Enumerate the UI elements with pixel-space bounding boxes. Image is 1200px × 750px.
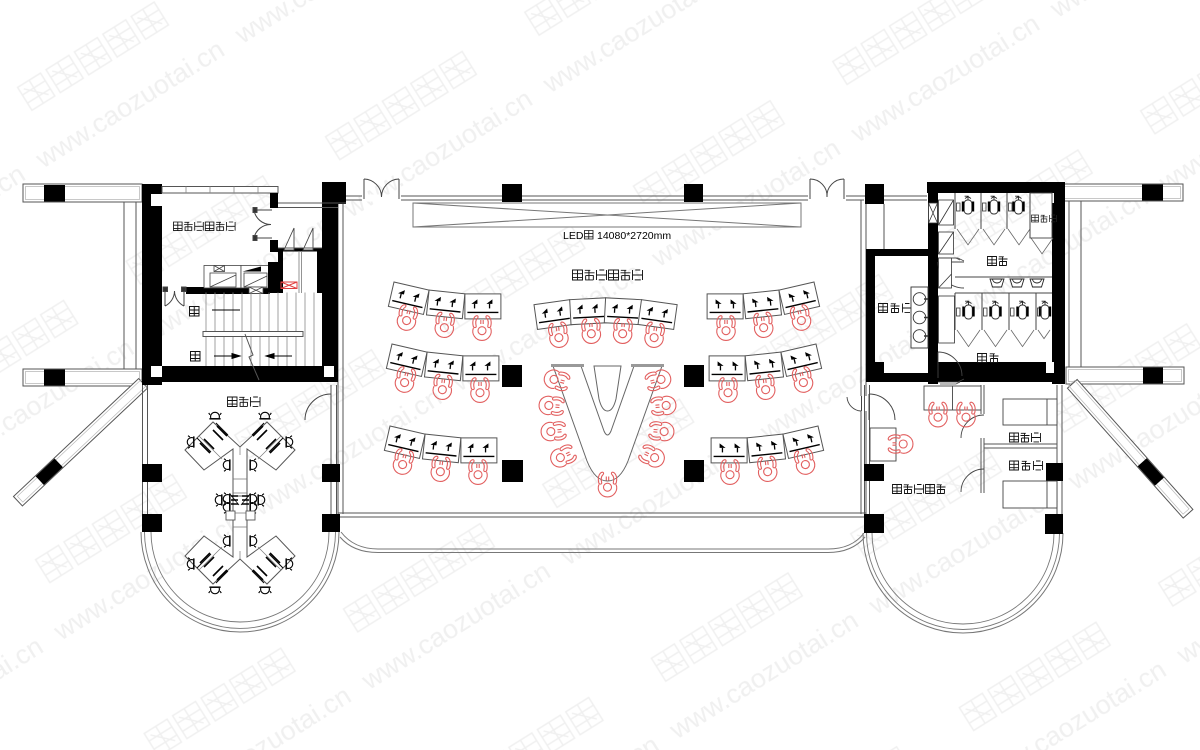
svg-text:14080*2720mm: 14080*2720mm (597, 230, 671, 242)
svg-text:LED: LED (563, 230, 584, 242)
